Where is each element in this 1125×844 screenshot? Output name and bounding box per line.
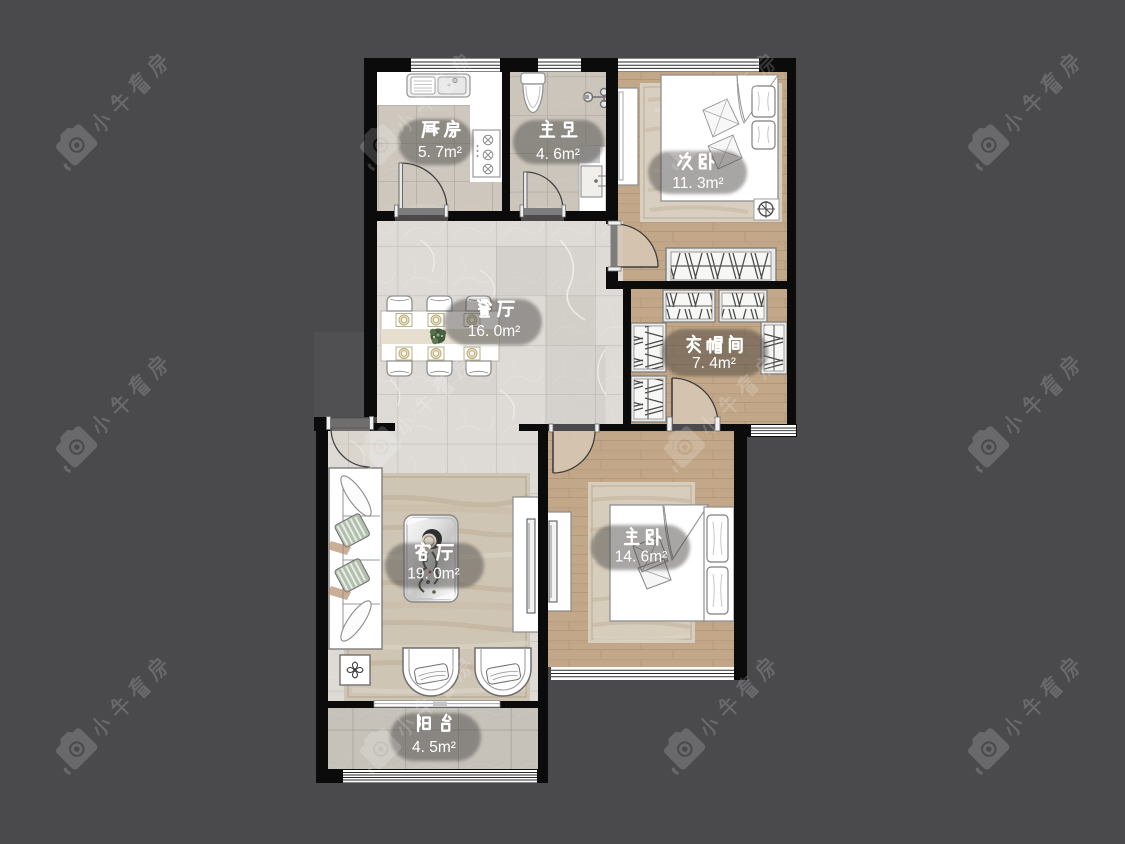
svg-text:19. 0m²: 19. 0m² bbox=[407, 566, 460, 583]
svg-text:4. 5m²: 4. 5m² bbox=[412, 739, 456, 756]
svg-text:5. 7m²: 5. 7m² bbox=[418, 144, 462, 161]
svg-text:14. 6m²: 14. 6m² bbox=[615, 549, 668, 566]
svg-text:11. 3m²: 11. 3m² bbox=[672, 175, 723, 192]
svg-text:7. 4m²: 7. 4m² bbox=[692, 355, 736, 372]
svg-text:16. 0m²: 16. 0m² bbox=[468, 323, 521, 340]
svg-text:4. 6m²: 4. 6m² bbox=[536, 146, 580, 163]
